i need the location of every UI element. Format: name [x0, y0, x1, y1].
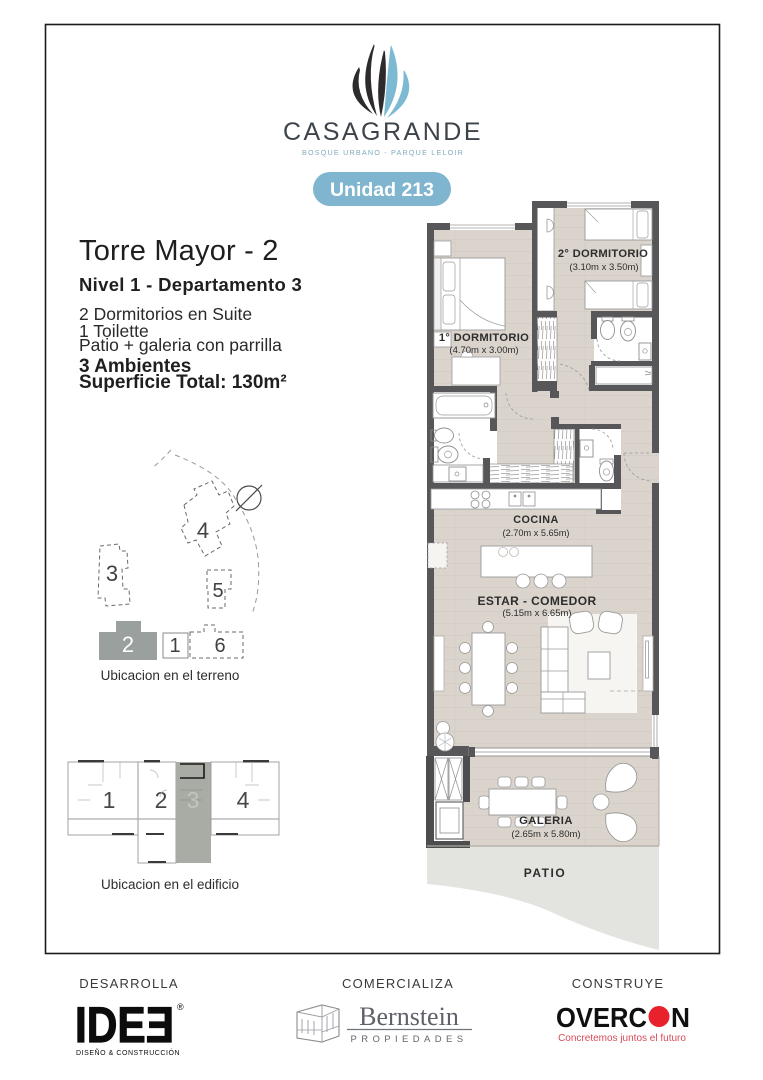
svg-text:COMERCIALIZA: COMERCIALIZA [342, 976, 454, 991]
svg-text:PROPIEDADES: PROPIEDADES [350, 1034, 467, 1045]
svg-text:Nivel 1 - Departamento 3: Nivel 1 - Departamento 3 [79, 274, 302, 295]
svg-text:Ubicacion en el terreno: Ubicacion en el terreno [101, 668, 240, 683]
svg-text:3: 3 [106, 561, 118, 586]
svg-text:(4.70m x 3.00m): (4.70m x 3.00m) [449, 345, 518, 356]
svg-text:N: N [671, 1002, 690, 1033]
svg-text:4: 4 [197, 518, 209, 543]
svg-text:2: 2 [122, 632, 134, 657]
svg-text:3: 3 [187, 787, 200, 813]
svg-text:ESTAR - COMEDOR: ESTAR - COMEDOR [477, 594, 596, 608]
svg-text:1: 1 [169, 635, 180, 657]
svg-text:Concretemos juntos el futuro: Concretemos juntos el futuro [558, 1033, 686, 1044]
svg-text:Ubicacion en el edificio: Ubicacion en el edificio [101, 877, 239, 892]
svg-text:2° DORMITORIO: 2° DORMITORIO [558, 248, 648, 260]
svg-text:(3.10m x 3.50m): (3.10m x 3.50m) [569, 262, 638, 273]
svg-text:5: 5 [212, 580, 223, 602]
svg-text:GALERIA: GALERIA [519, 815, 573, 827]
svg-text:CASAGRANDE: CASAGRANDE [283, 118, 483, 146]
svg-text:Unidad 213: Unidad 213 [330, 179, 434, 201]
svg-text:OVERC: OVERC [556, 1002, 647, 1033]
svg-text:DESARROLLA: DESARROLLA [79, 976, 178, 991]
svg-text:2: 2 [155, 787, 168, 813]
svg-text:(5.15m x 6.65m): (5.15m x 6.65m) [502, 608, 571, 619]
svg-text:PATIO: PATIO [524, 866, 566, 880]
svg-text:COCINA: COCINA [513, 514, 559, 526]
svg-text:Superficie Total: 130m²: Superficie Total: 130m² [79, 372, 287, 393]
svg-text:1: 1 [103, 787, 116, 813]
svg-text:(2.65m x 5.80m): (2.65m x 5.80m) [511, 829, 580, 840]
svg-text:6: 6 [214, 635, 225, 657]
svg-text:1° DORMITORIO: 1° DORMITORIO [439, 332, 529, 344]
svg-text:DISEÑO & CONSTRUCCIÓN: DISEÑO & CONSTRUCCIÓN [76, 1048, 180, 1057]
svg-text:4: 4 [237, 787, 250, 813]
svg-text:Torre Mayor - 2: Torre Mayor - 2 [79, 235, 279, 267]
svg-text:BOSQUE URBANO - PARQUE LELOIR: BOSQUE URBANO - PARQUE LELOIR [302, 148, 464, 157]
svg-text:CONSTRUYE: CONSTRUYE [572, 976, 664, 991]
svg-text:(2.70m x 5.65m): (2.70m x 5.65m) [503, 528, 570, 538]
svg-text:IDEƎ: IDEƎ [75, 997, 174, 1053]
svg-text:Patio + galeria con parrilla: Patio + galeria con parrilla [79, 335, 282, 355]
svg-text:Bernstein: Bernstein [359, 1002, 459, 1031]
svg-text:®: ® [177, 1002, 184, 1012]
